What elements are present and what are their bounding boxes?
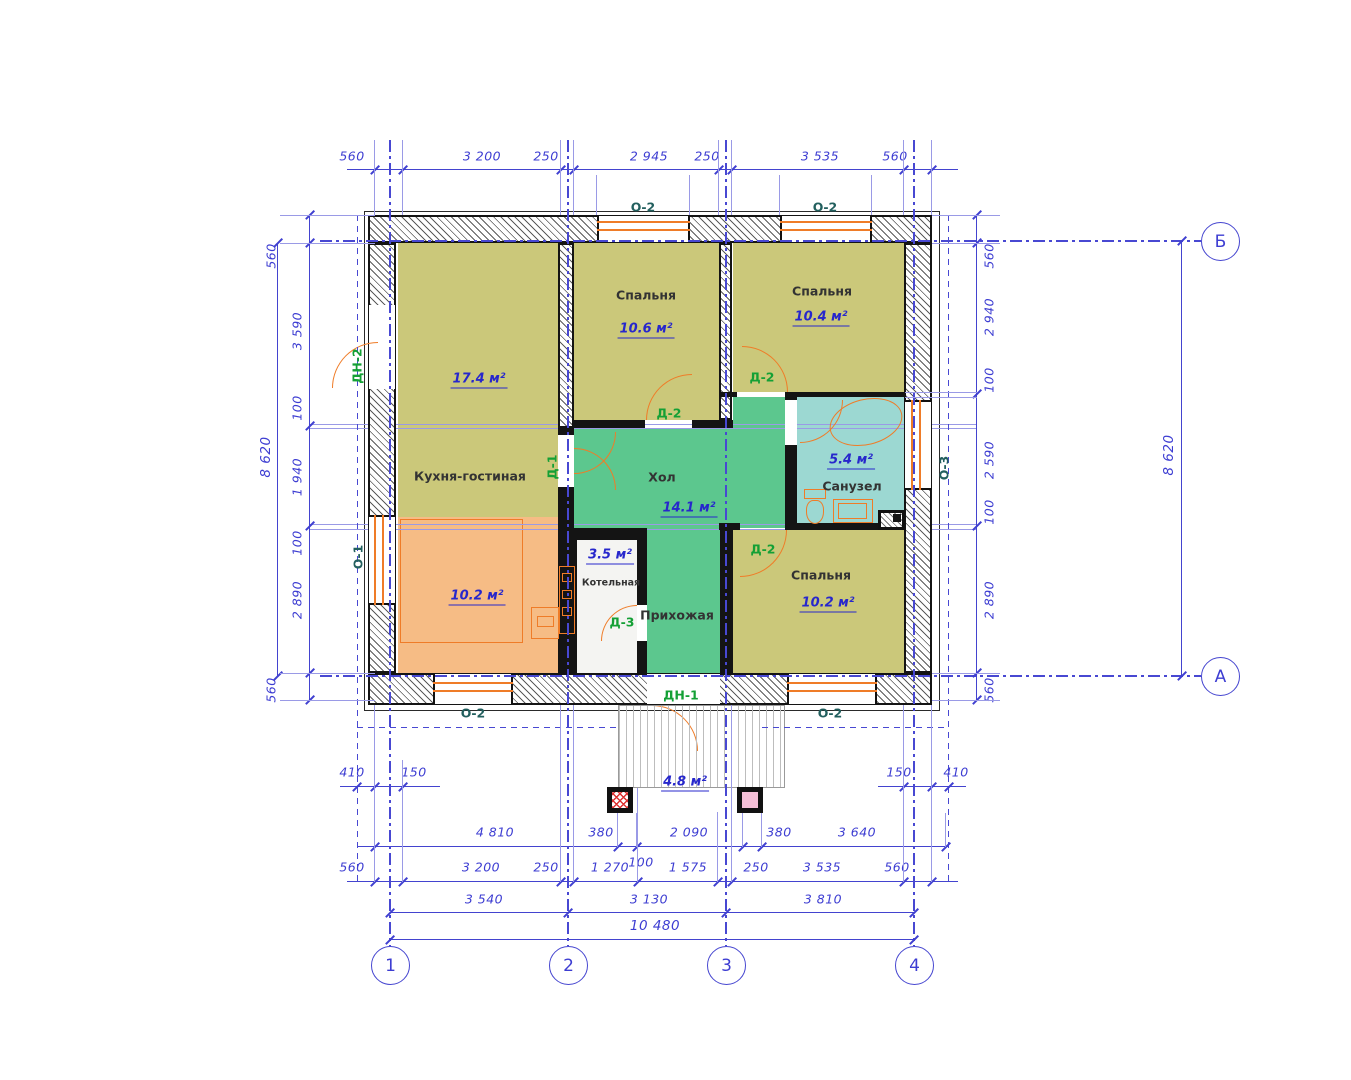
- dim-label: 560: [982, 243, 997, 268]
- window-label-o2-top-1: О-2: [631, 200, 656, 215]
- room-label-bedroom-right: Спальня: [792, 284, 852, 299]
- dim-label: 3 810: [804, 892, 842, 907]
- extension-line: [779, 175, 780, 215]
- extension-line: [903, 705, 904, 882]
- extension-line: [374, 705, 375, 882]
- extension-line: [280, 700, 375, 701]
- dim-label: 250: [533, 860, 558, 875]
- grid-bubble-1-label: 1: [385, 956, 396, 976]
- porch-column-left: [607, 787, 633, 813]
- extension-line: [905, 397, 977, 398]
- grid-bubble-A-label: А: [1215, 667, 1227, 687]
- extension-line: [617, 813, 618, 847]
- dim-label: 1 940: [290, 458, 305, 496]
- dim-label: 250: [743, 860, 768, 875]
- room-label-boiler: Котельная: [582, 578, 640, 589]
- window-label-o2-bottom-1: О-2: [461, 706, 486, 721]
- extension-line: [742, 813, 743, 847]
- extension-line: [945, 813, 946, 847]
- extension-line: [717, 812, 718, 882]
- extension-line: [932, 673, 1000, 674]
- toilet-icon: [806, 500, 824, 524]
- extension-line: [280, 243, 375, 244]
- dim-line-top: [347, 169, 958, 170]
- dim-label: 1 270: [591, 860, 629, 875]
- extension-line: [637, 788, 638, 882]
- dim-label: 100: [982, 499, 997, 524]
- opening-kitchen-door: [558, 435, 574, 487]
- extension-line: [931, 705, 932, 882]
- dim-label: 3 200: [463, 149, 501, 164]
- area-label-bedroom-right: 10.4 м²: [793, 310, 850, 327]
- dim-label: 410: [339, 765, 364, 780]
- dim-label: 3 200: [462, 860, 500, 875]
- grid-axis-A-line: [320, 675, 1201, 677]
- extension-line: [932, 243, 1000, 244]
- wall-boiler-top: [558, 528, 647, 540]
- window-bottom-2-glass: [787, 682, 877, 684]
- grid-bubble-3-label: 3: [721, 956, 732, 976]
- dim-line-right-total: [1181, 241, 1182, 676]
- extension-line: [374, 140, 375, 215]
- door-label-d2-bedroom-right: Д-2: [749, 370, 774, 385]
- wall-south-partition-a: [719, 523, 740, 530]
- wall-bed1-bottom-a: [574, 420, 645, 428]
- grid-bubble-4: 4: [895, 946, 934, 985]
- extension-line: [903, 140, 904, 215]
- dim-line-left-total: [277, 243, 278, 676]
- extension-line: [560, 140, 561, 215]
- dim-label: 250: [694, 149, 719, 164]
- extension-line: [636, 813, 637, 847]
- extension-line: [931, 140, 932, 215]
- dim-label: 560: [264, 677, 279, 702]
- dim-label: 3 535: [801, 149, 839, 164]
- grid-bubble-B: Б: [1201, 222, 1240, 261]
- extension-line: [280, 215, 375, 216]
- window-label-o3: О-3: [937, 456, 952, 481]
- window-top-2-glass: [780, 229, 872, 231]
- wall-axis2-lower: [558, 487, 574, 528]
- dim-tick: [305, 421, 315, 431]
- grid-bubble-2: 2: [549, 946, 588, 985]
- dim-label: 410: [943, 765, 968, 780]
- dim-label: 2 890: [290, 581, 305, 619]
- window-bottom-1: [433, 674, 513, 704]
- area-label-bedroom-top: 10.6 м²: [618, 322, 675, 339]
- room-label-bathroom: Санузел: [822, 479, 881, 494]
- foundation-dashed-bottom: [357, 727, 618, 728]
- grid-axis-4-line: [913, 140, 915, 946]
- extension-line: [932, 215, 1000, 216]
- extension-line: [596, 175, 597, 215]
- room-label-hall: Хол: [648, 470, 675, 485]
- dim-line-row1-right: [878, 786, 966, 787]
- dim-label: 100: [982, 367, 997, 392]
- grid-axis-B-line: [320, 240, 1201, 242]
- dim-line-left: [309, 215, 310, 700]
- dim-label: 3 130: [630, 892, 668, 907]
- grid-bubble-2-label: 2: [563, 956, 574, 976]
- window-label-o2-top-2: О-2: [813, 200, 838, 215]
- dim-label: 560: [264, 243, 279, 268]
- room-label-kitchen-living: Кухня-гостиная: [414, 469, 526, 484]
- dim-label: 100: [628, 855, 653, 870]
- window-bottom-2: [787, 674, 877, 704]
- dim-label: 560: [339, 860, 364, 875]
- window-bottom-2-glass: [787, 690, 877, 692]
- dim-label: 380: [766, 825, 791, 840]
- dim-label: 3 540: [465, 892, 503, 907]
- extension-line: [718, 140, 719, 215]
- area-label-boiler: 3.5 м²: [586, 548, 634, 565]
- dim-label-total: 10 480: [630, 918, 680, 934]
- dim-label: 380: [588, 825, 613, 840]
- dim-line-right: [976, 215, 977, 700]
- extension-line: [573, 140, 574, 215]
- extension-line: [932, 700, 1000, 701]
- foundation-dashed-bottom: [762, 727, 949, 728]
- grid-bubble-1: 1: [371, 946, 410, 985]
- grid-bubble-3: 3: [707, 946, 746, 985]
- door-label-d1: Д-1: [545, 454, 560, 479]
- door-label-d3: Д-3: [609, 615, 634, 630]
- dim-label: 2 945: [630, 149, 668, 164]
- extension-line: [761, 813, 762, 847]
- grid-bubble-4-label: 4: [909, 956, 920, 976]
- washing-machine-icon: [838, 503, 867, 519]
- dim-label: 100: [290, 395, 305, 420]
- window-right-o3: [905, 400, 931, 490]
- window-top-1-glass: [597, 221, 690, 223]
- kitchen-zone-outline: [400, 519, 523, 643]
- dim-label: 2 890: [982, 581, 997, 619]
- window-top-1-glass: [597, 229, 690, 231]
- wall-axis2-upper: [558, 243, 574, 428]
- window-top-2-glass: [780, 221, 872, 223]
- extension-line: [905, 392, 977, 393]
- dim-label: 560: [339, 149, 364, 164]
- area-label-kitchen-zone: 10.2 м²: [449, 589, 506, 606]
- wall-bed2-bottom-a: [719, 392, 737, 397]
- dim-line-row2: [357, 846, 949, 847]
- extension-line: [402, 760, 403, 882]
- dim-line-row5: [390, 939, 914, 940]
- room-entry-corridor: [647, 523, 720, 673]
- dim-label: 150: [401, 765, 426, 780]
- floor-plan-drawing: 560 3 200 250 2 945 250 3 535 560 560 3 …: [0, 0, 1351, 1080]
- door-label-dn1: ДН-1: [663, 688, 698, 703]
- opening-bath-door: [785, 400, 797, 445]
- dim-label: 3 590: [290, 312, 305, 350]
- area-label-bedroom-bottom: 10.2 м²: [800, 596, 857, 613]
- area-label-bathroom: 5.4 м²: [827, 453, 875, 470]
- dim-label: 2 090: [670, 825, 708, 840]
- kitchen-stove-icon: [537, 616, 554, 627]
- grid-axis-2-line: [567, 140, 569, 946]
- dim-label: 560: [884, 860, 909, 875]
- dim-label-total: 8 620: [258, 436, 274, 477]
- window-bottom-1-glass: [433, 682, 513, 684]
- dim-label: 4 810: [476, 825, 514, 840]
- window-label-o2-bottom-2: О-2: [818, 706, 843, 721]
- dim-label: 560: [982, 677, 997, 702]
- vent-shaft-core: [893, 514, 901, 522]
- extension-line: [280, 673, 375, 674]
- grid-bubble-B-label: Б: [1215, 232, 1227, 252]
- room-label-bedroom-bottom: Спальня: [791, 568, 851, 583]
- dim-label: 3 640: [838, 825, 876, 840]
- grid-axis-1-line: [389, 140, 391, 946]
- window-bottom-1-glass: [433, 690, 513, 692]
- grid-bubble-A: А: [1201, 657, 1240, 696]
- dim-label-total: 8 620: [1161, 434, 1177, 475]
- door-label-d2-bedroom-bottom: Д-2: [750, 542, 775, 557]
- extension-line: [689, 175, 690, 215]
- area-label-kitchen-living: 17.4 м²: [451, 372, 508, 389]
- window-left-o1-glass: [374, 515, 376, 605]
- extension-line: [731, 140, 732, 215]
- grid-axis-3-line: [725, 140, 727, 946]
- dim-label: 150: [886, 765, 911, 780]
- room-label-bedroom-top: Спальня: [616, 288, 676, 303]
- window-right-o3-glass: [919, 400, 921, 490]
- window-label-o1: О-1: [351, 545, 366, 570]
- wall-bed2-bottom-b: [785, 392, 905, 397]
- extension-line: [731, 705, 732, 882]
- dim-label: 100: [290, 530, 305, 555]
- extension-line: [871, 175, 872, 215]
- extension-line: [402, 140, 403, 215]
- dim-label: 2 940: [982, 298, 997, 336]
- wall-axis2-stub: [558, 428, 574, 435]
- room-label-entry: Прихожая: [640, 608, 714, 623]
- dim-label: 250: [533, 149, 558, 164]
- porch-column-right: [737, 787, 763, 813]
- extension-line: [560, 705, 561, 882]
- foundation-dashed-right: [948, 215, 949, 882]
- window-left-o1-glass: [382, 515, 384, 605]
- dim-label: 1 575: [669, 860, 707, 875]
- area-label-hall: 14.1 м²: [661, 501, 718, 518]
- dim-label: 2 590: [982, 441, 997, 479]
- door-label-d2-bedroom-top: Д-2: [656, 406, 681, 421]
- dim-label: 3 535: [803, 860, 841, 875]
- dim-tick: [972, 521, 982, 531]
- extension-line: [573, 705, 574, 882]
- dim-line-row3: [347, 881, 958, 882]
- area-label-porch: 4.8 м²: [661, 775, 709, 792]
- dim-line-row4: [390, 912, 914, 913]
- door-label-dn2: ДН-2: [350, 348, 365, 383]
